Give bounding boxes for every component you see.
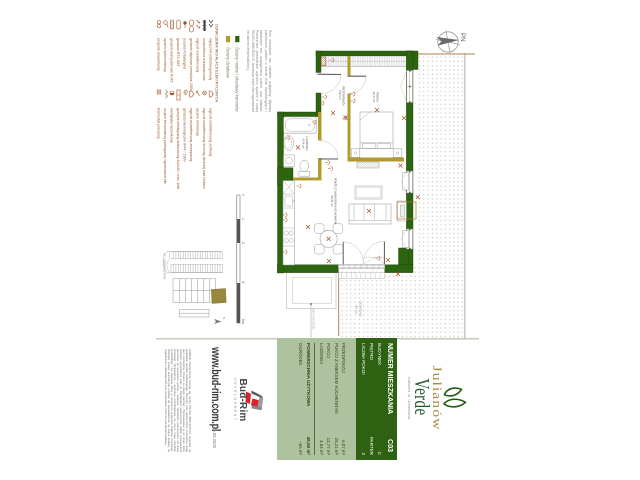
svg-text:gniazdo komputerowe RJ45: gniazdo komputerowe RJ45 xyxy=(170,38,174,83)
svg-text:- Ściany działowe: - Ściany działowe xyxy=(225,45,230,79)
svg-text:rozdzielnica mieszkaniowa: rozdzielnica mieszkaniowa xyxy=(202,38,206,81)
svg-text:termostat pokojowy: termostat pokojowy xyxy=(157,108,161,139)
svg-text:1: 1 xyxy=(241,218,245,220)
svg-text:N: N xyxy=(222,317,226,319)
svg-text:wypust oświetleniowy sufitowy: wypust oświetleniowy sufitowy xyxy=(209,108,213,157)
svg-text:wypust oświetleniowy ścienny (: wypust oświetleniowy ścienny (kinkiet) n… xyxy=(202,108,206,189)
svg-text:wypust oświetleniowy: wypust oświetleniowy xyxy=(196,38,200,73)
svg-text:gniazdo RTV-SAT: gniazdo RTV-SAT xyxy=(176,38,180,67)
svg-text:OZNACZENIA INSTALACJI ELEKTRYC: OZNACZENIA INSTALACJI ELEKTRYCZNYCH xyxy=(214,24,218,103)
svg-text:łącznik świecznikowy: łącznik świecznikowy xyxy=(163,38,167,72)
svg-text:0: 0 xyxy=(241,194,245,196)
svg-text:czujnik temperatury podłogowej: czujnik temperatury podłogowej ogrzewani… xyxy=(163,108,167,185)
svg-text:- Ściany nośne i obudowy komin: - Ściany nośne i obudowy kominów xyxy=(235,45,240,113)
svg-text:wypust oświetleniowy zewnętrzn: wypust oświetleniowy zewnętrzny xyxy=(189,108,193,162)
svg-text:6m: 6m xyxy=(241,319,245,324)
svg-text:wentylator łazienkowy: wentylator łazienkowy xyxy=(170,108,174,143)
svg-text:gniazdo wtykowe podwójne 230V: gniazdo wtykowe podwójne 230V xyxy=(189,38,193,92)
svg-text:4: 4 xyxy=(241,281,245,283)
svg-text:puszka instalacyjna: puszka instalacyjna xyxy=(183,38,187,69)
svg-text:2: 2 xyxy=(241,242,245,244)
svg-text:przycisk dzwonkowy: przycisk dzwonkowy xyxy=(157,38,161,71)
svg-text:wyłącznik jednobiegunowy: wyłącznik jednobiegunowy xyxy=(209,38,213,81)
svg-text:łącznik schodowy: łącznik schodowy xyxy=(196,108,200,136)
svg-text:grzejnik elektryczny drabinkow: grzejnik elektryczny drabinkowy 40x120 /… xyxy=(176,108,180,190)
svg-text:gniazdo hermetyczne IP44 / 230: gniazdo hermetyczne IP44 / 230V xyxy=(183,108,187,163)
